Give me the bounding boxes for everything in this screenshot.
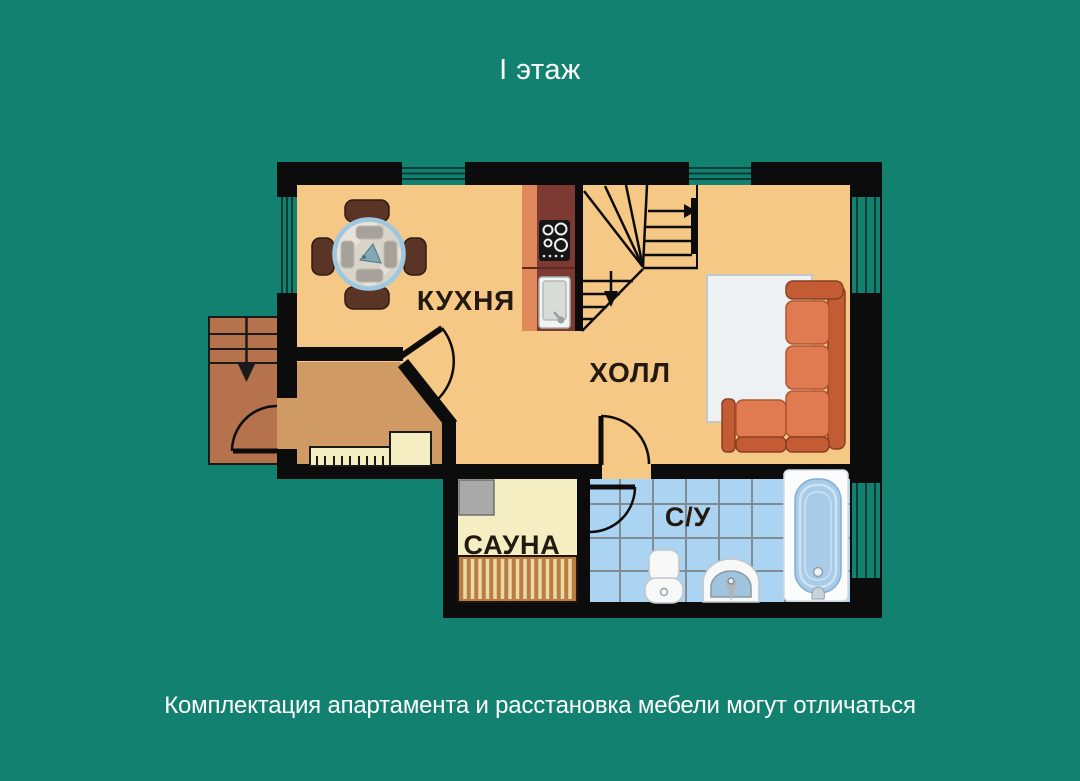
- kitchen-sink: [539, 277, 570, 328]
- bathtub: [784, 470, 848, 601]
- sauna-heater: [459, 480, 494, 515]
- washbasin: [703, 559, 759, 602]
- hall-label: ХОЛЛ: [589, 357, 671, 388]
- window-right-upper: [852, 197, 880, 293]
- window-right-lower: [852, 483, 880, 578]
- window-left: [277, 197, 297, 293]
- sauna-bench: [458, 556, 577, 602]
- disclaimer-note: Комплектация апартамента и расстановка м…: [0, 692, 1080, 720]
- entry-cabinet: [390, 432, 431, 466]
- floor-plan: КУХНЯ ХОЛЛ САУНА С/У: [0, 0, 1080, 781]
- entrance-porch-steps: [209, 317, 278, 464]
- window-top-right: [689, 162, 751, 185]
- radiator-bench: [310, 447, 390, 466]
- bathroom-label: С/У: [665, 502, 712, 532]
- stove: [539, 220, 570, 261]
- window-top-left: [402, 162, 465, 185]
- bathtub-faucet: [812, 587, 825, 599]
- toilet: [645, 550, 683, 603]
- sauna-label: САУНА: [463, 530, 560, 560]
- bathtub-drain: [814, 568, 823, 577]
- entry-door-opening: [277, 398, 297, 449]
- kitchen-label: КУХНЯ: [417, 285, 515, 316]
